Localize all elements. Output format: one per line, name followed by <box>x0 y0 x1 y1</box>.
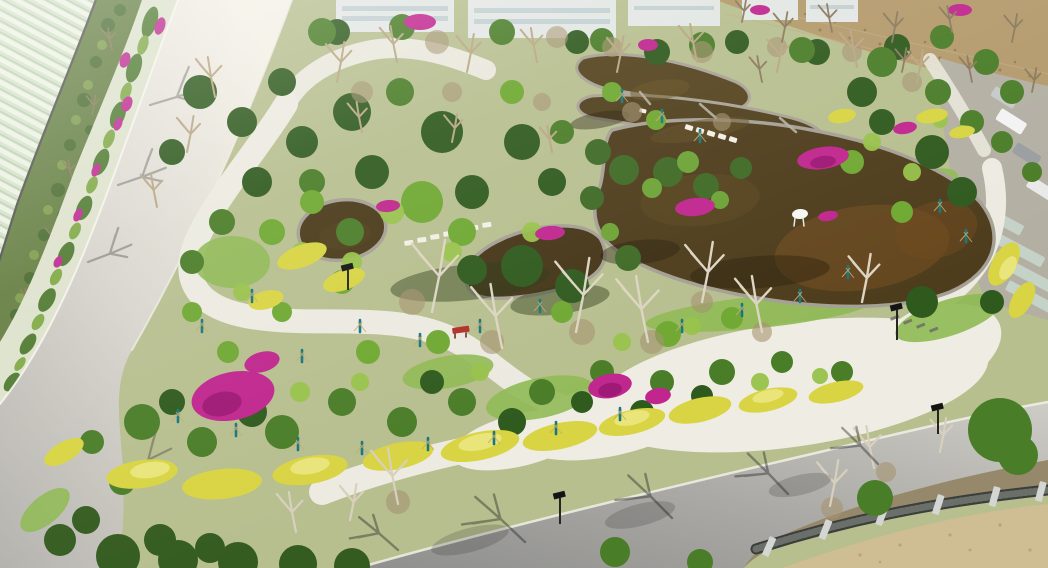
aerial-park-scene: Aerial view of a newly built landscaped … <box>0 0 1048 568</box>
sun-haze <box>0 0 1048 568</box>
aerial-photo-canvas <box>0 0 1048 568</box>
